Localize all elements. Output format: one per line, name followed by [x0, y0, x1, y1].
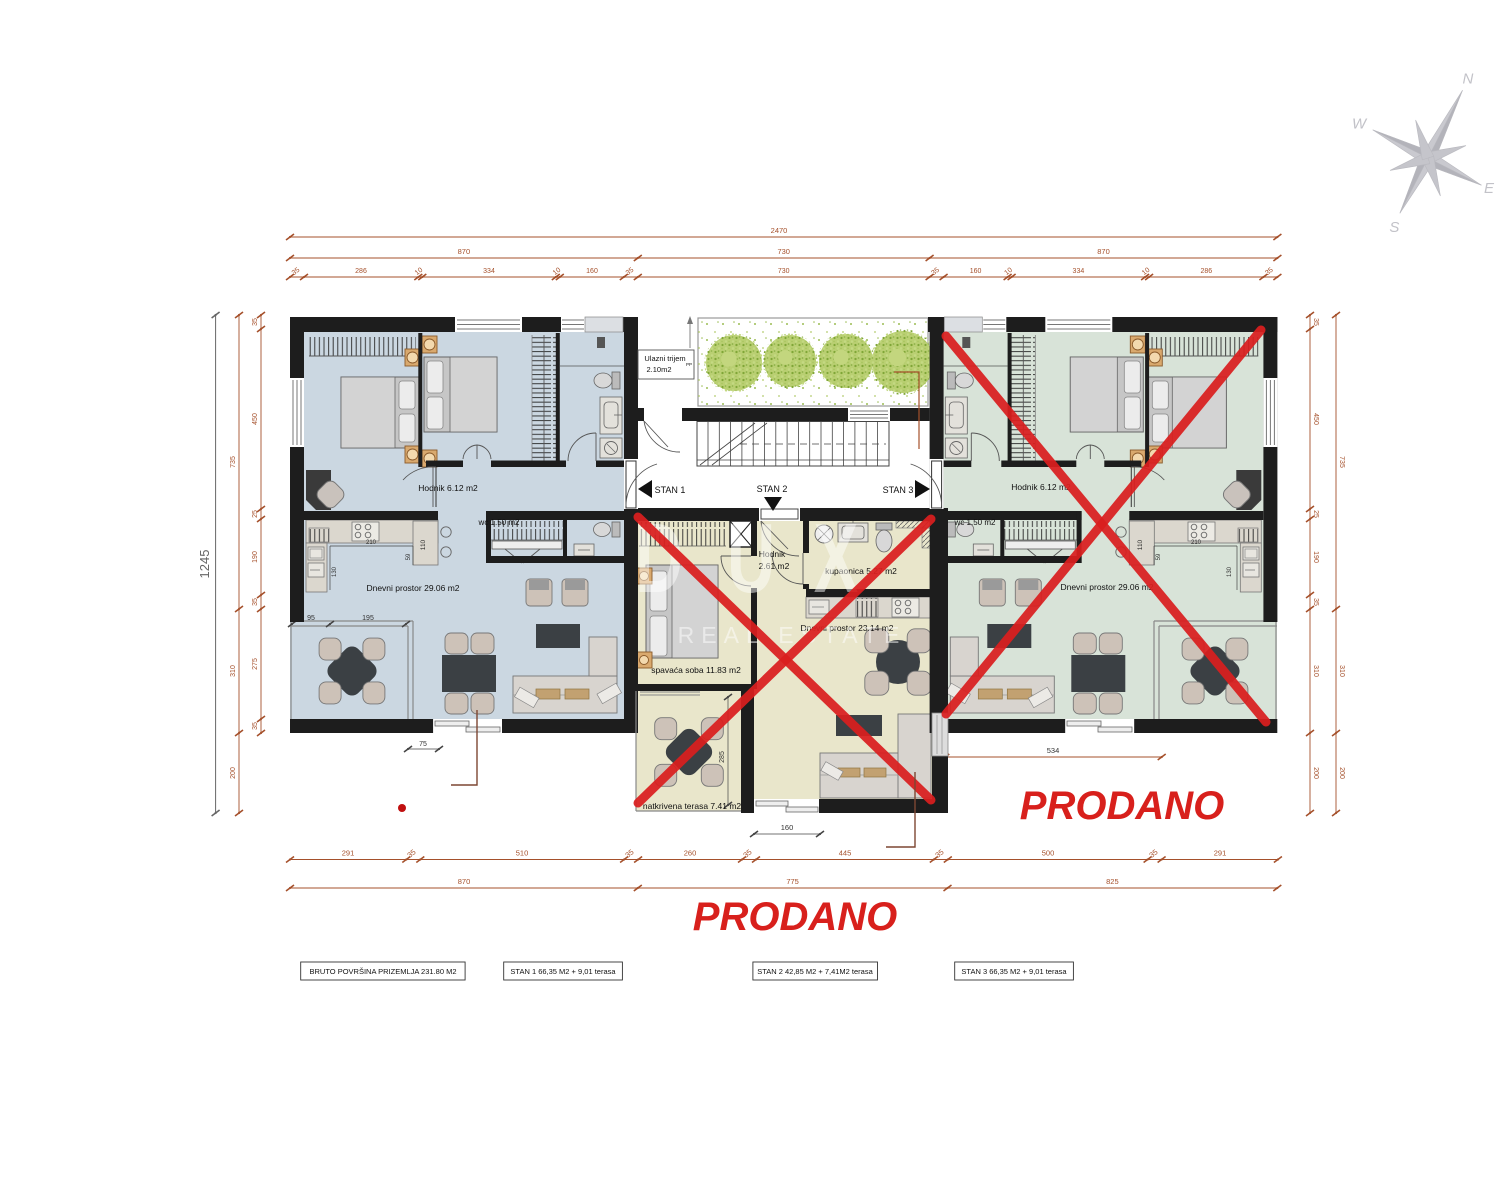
svg-text:286: 286	[355, 268, 367, 275]
svg-text:59: 59	[1156, 553, 1162, 560]
svg-text:735: 735	[230, 456, 237, 468]
svg-text:STAN 1 66,35 M2 + 9,01 terasa: STAN 1 66,35 M2 + 9,01 terasa	[510, 967, 616, 976]
svg-text:160: 160	[586, 268, 598, 275]
svg-text:STAN 2: STAN 2	[757, 484, 788, 494]
svg-text:95: 95	[307, 615, 315, 622]
svg-text:Dnevni prostor 29.06 m2: Dnevni prostor 29.06 m2	[1060, 582, 1153, 592]
svg-text:730: 730	[778, 268, 790, 275]
svg-text:286: 286	[1200, 268, 1212, 275]
svg-text:825: 825	[1106, 877, 1119, 886]
svg-text:STAN 1: STAN 1	[655, 485, 686, 495]
svg-text:200: 200	[1312, 767, 1319, 779]
svg-text:870: 870	[1097, 247, 1110, 256]
svg-text:310: 310	[1312, 665, 1319, 677]
svg-text:500: 500	[1042, 849, 1055, 858]
svg-text:REAL ESTATE: REAL ESTATE	[678, 622, 907, 648]
svg-text:59: 59	[406, 553, 412, 560]
svg-text:wc 1.50 m2: wc 1.50 m2	[478, 518, 520, 527]
svg-text:STAN 3: STAN 3	[883, 485, 914, 495]
svg-text:2.10m2: 2.10m2	[646, 365, 671, 374]
svg-text:2470: 2470	[771, 226, 788, 235]
svg-text:130: 130	[1227, 566, 1233, 577]
svg-text:35: 35	[252, 722, 259, 730]
svg-text:334: 334	[1073, 268, 1085, 275]
svg-text:Hodnik 6.12 m2: Hodnik 6.12 m2	[418, 483, 478, 493]
svg-text:natkrivena terasa 7.41 m2: natkrivena terasa 7.41 m2	[643, 801, 742, 811]
svg-text:35: 35	[1312, 318, 1319, 326]
svg-text:310: 310	[1338, 665, 1345, 677]
svg-text:870: 870	[458, 877, 471, 886]
svg-text:PRODANO: PRODANO	[693, 895, 897, 939]
svg-text:STAN 2 42,85 M2 + 7,41M2 teras: STAN 2 42,85 M2 + 7,41M2 terasa	[757, 967, 873, 976]
svg-text:W: W	[1352, 115, 1368, 132]
svg-text:1245: 1245	[197, 550, 212, 579]
svg-text:210: 210	[1191, 540, 1202, 546]
svg-text:190: 190	[252, 551, 259, 563]
svg-text:35: 35	[252, 598, 259, 606]
svg-text:Ulazni trijem: Ulazni trijem	[644, 354, 685, 363]
svg-text:291: 291	[1214, 849, 1227, 858]
svg-text:N: N	[1463, 71, 1474, 88]
svg-text:35: 35	[252, 318, 259, 326]
svg-text:450: 450	[1312, 413, 1319, 425]
svg-text:510: 510	[516, 849, 529, 858]
svg-text:wc 1.50 m2: wc 1.50 m2	[954, 518, 996, 527]
svg-text:25: 25	[252, 510, 259, 518]
svg-text:75: 75	[419, 741, 427, 748]
svg-text:334: 334	[483, 268, 495, 275]
svg-text:BRUTO POVRŠINA PRIZEMLJA 231.: BRUTO POVRŠINA PRIZEMLJA 231.80 M2	[310, 967, 457, 976]
svg-text:260: 260	[684, 849, 697, 858]
svg-text:Dnevni prostor 29.06 m2: Dnevni prostor 29.06 m2	[366, 583, 459, 593]
svg-text:450: 450	[252, 413, 259, 425]
svg-text:E: E	[1484, 180, 1495, 197]
svg-text:445: 445	[839, 849, 852, 858]
svg-text:160: 160	[970, 268, 982, 275]
svg-text:110: 110	[1137, 539, 1144, 550]
svg-text:195: 195	[362, 615, 374, 622]
svg-text:210: 210	[366, 540, 377, 546]
svg-text:Hodnik 6.12 m2: Hodnik 6.12 m2	[1011, 482, 1071, 492]
svg-text:870: 870	[458, 247, 471, 256]
svg-text:291: 291	[342, 849, 355, 858]
svg-text:spavaća soba 11.83 m2: spavaća soba 11.83 m2	[651, 665, 741, 675]
svg-text:275: 275	[252, 658, 259, 670]
svg-text:534: 534	[1047, 746, 1060, 755]
svg-text:775: 775	[786, 877, 799, 886]
svg-text:U: U	[727, 503, 775, 613]
svg-text:PRODANO: PRODANO	[1020, 784, 1224, 828]
svg-text:35: 35	[1312, 598, 1319, 606]
svg-text:160: 160	[781, 823, 794, 832]
svg-text:25: 25	[1312, 510, 1319, 518]
svg-text:200: 200	[230, 767, 237, 779]
svg-text:735: 735	[1338, 456, 1345, 468]
svg-text:PP: PP	[686, 362, 692, 367]
svg-text:190: 190	[1312, 551, 1319, 563]
svg-text:310: 310	[230, 665, 237, 677]
svg-text:110: 110	[420, 539, 427, 550]
svg-text:285: 285	[719, 751, 726, 763]
svg-text:S: S	[1389, 219, 1399, 236]
svg-text:200: 200	[1338, 767, 1345, 779]
svg-text:STAN 3 66,35 M2 + 9,01 terasa: STAN 3 66,35 M2 + 9,01 terasa	[961, 967, 1067, 976]
svg-text:730: 730	[777, 247, 790, 256]
svg-text:130: 130	[332, 566, 338, 577]
